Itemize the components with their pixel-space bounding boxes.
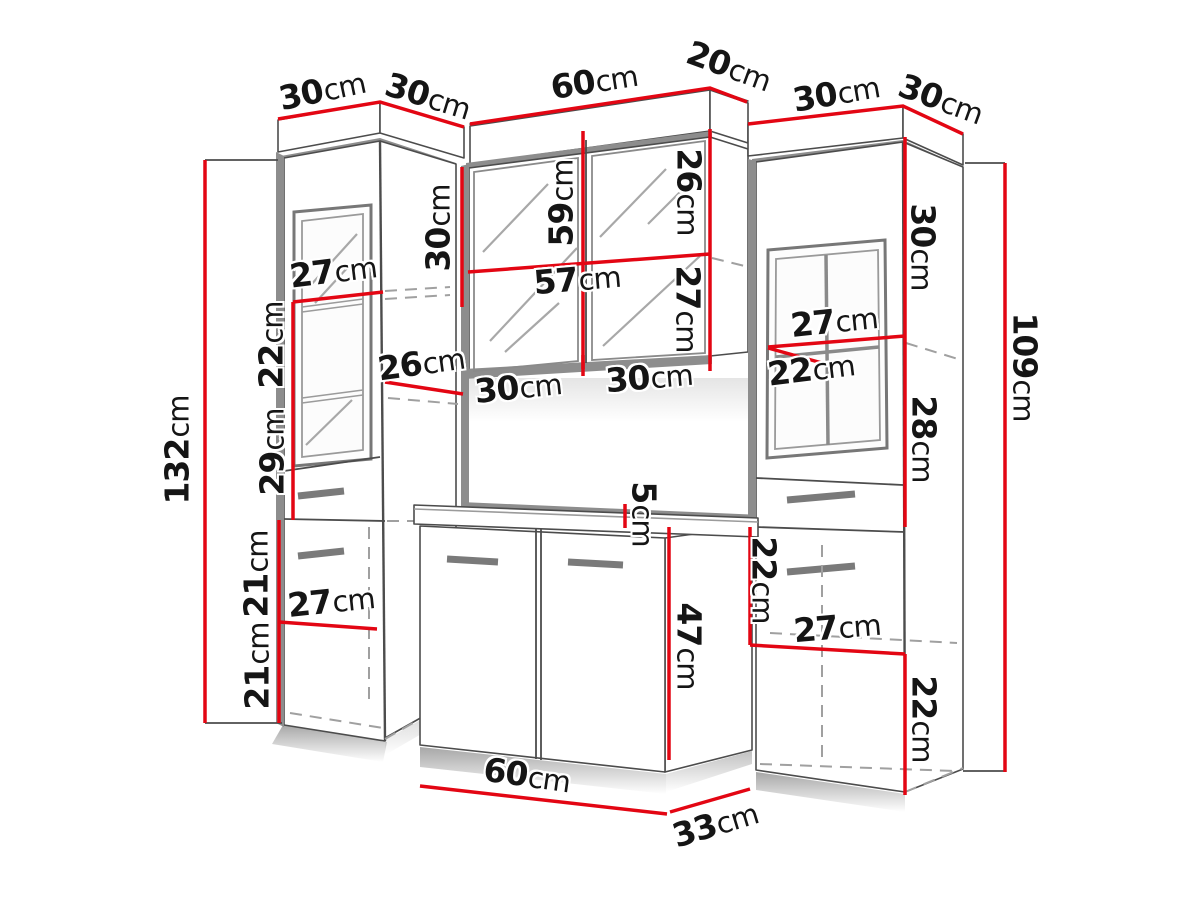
mirror-cabinet <box>461 88 762 523</box>
washbasin-vanity <box>414 505 758 772</box>
diagram-canvas <box>0 0 1200 900</box>
right-tall-cabinet <box>748 106 963 792</box>
furniture-dimension-diagram: 30cm30cm60cm20cm30cm30cm132cm27cm22cm29c… <box>0 0 1200 900</box>
